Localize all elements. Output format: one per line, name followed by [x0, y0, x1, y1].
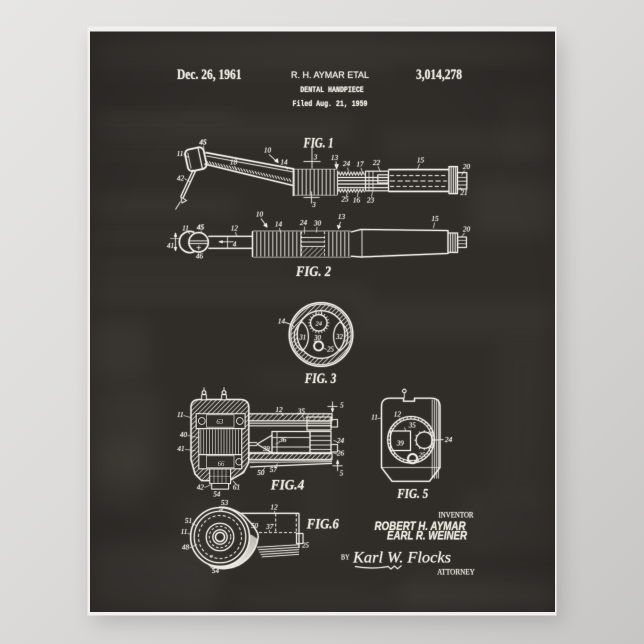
svg-text:FIG. 5: FIG. 5 — [396, 486, 428, 501]
svg-text:ATTORNEY: ATTORNEY — [437, 568, 475, 577]
svg-text:10: 10 — [264, 147, 272, 155]
svg-text:50: 50 — [251, 522, 259, 530]
svg-text:25: 25 — [419, 452, 425, 459]
svg-text:41: 41 — [167, 242, 174, 250]
svg-text:BY: BY — [341, 554, 350, 562]
svg-text:13: 13 — [338, 213, 346, 221]
svg-text:20: 20 — [463, 163, 471, 171]
svg-text:Filed Aug. 21, 1959: Filed Aug. 21, 1959 — [293, 100, 368, 109]
svg-text:26: 26 — [337, 450, 345, 458]
svg-text:EARL R. WEINER: EARL R. WEINER — [387, 531, 468, 543]
svg-text:25: 25 — [327, 347, 334, 354]
svg-text:FIG.4: FIG.4 — [270, 478, 305, 494]
svg-text:3,014,278: 3,014,278 — [416, 67, 462, 83]
svg-text:66: 66 — [218, 461, 225, 468]
svg-text:42: 42 — [177, 175, 185, 183]
svg-text:16: 16 — [353, 197, 361, 205]
svg-text:24: 24 — [316, 320, 323, 327]
svg-text:3: 3 — [313, 154, 318, 162]
svg-text:DENTAL HANDPIECE: DENTAL HANDPIECE — [300, 86, 364, 95]
svg-text:35: 35 — [297, 408, 306, 416]
svg-text:25: 25 — [341, 196, 349, 204]
svg-text:42: 42 — [197, 484, 205, 492]
svg-text:39: 39 — [262, 446, 270, 453]
svg-text:24: 24 — [337, 437, 345, 445]
svg-text:5: 5 — [340, 402, 344, 410]
svg-text:11: 11 — [371, 414, 378, 422]
svg-text:31: 31 — [298, 334, 306, 341]
svg-text:a: a — [219, 508, 222, 514]
svg-text:63: 63 — [216, 419, 223, 426]
svg-text:FIG.6: FIG.6 — [306, 517, 340, 533]
svg-text:17: 17 — [356, 161, 364, 169]
svg-text:12: 12 — [394, 411, 402, 419]
svg-text:11: 11 — [177, 411, 184, 419]
svg-text:Dec. 26, 1961: Dec. 26, 1961 — [177, 67, 242, 83]
svg-text:50: 50 — [257, 469, 265, 477]
svg-text:11: 11 — [177, 150, 184, 158]
svg-text:24: 24 — [343, 160, 351, 168]
svg-text:23: 23 — [367, 197, 375, 205]
svg-text:R. H. AYMAR ETAL: R. H. AYMAR ETAL — [291, 70, 369, 80]
svg-text:54: 54 — [212, 567, 220, 575]
svg-text:24: 24 — [445, 435, 453, 444]
svg-text:40: 40 — [180, 431, 188, 439]
svg-text:FIG. 1: FIG. 1 — [303, 136, 334, 152]
svg-text:45: 45 — [198, 139, 207, 147]
svg-text:25: 25 — [302, 543, 309, 550]
svg-text:41: 41 — [177, 445, 184, 453]
svg-text:24: 24 — [300, 219, 308, 227]
svg-text:53: 53 — [221, 499, 229, 507]
svg-text:11: 11 — [181, 528, 188, 536]
svg-text:39: 39 — [396, 440, 405, 448]
svg-text:15: 15 — [431, 215, 439, 223]
svg-text:20: 20 — [463, 226, 471, 234]
svg-text:10: 10 — [256, 211, 264, 219]
svg-text:35: 35 — [408, 422, 417, 430]
svg-text:22: 22 — [373, 159, 381, 167]
svg-text:11: 11 — [182, 225, 189, 233]
svg-text:30: 30 — [313, 220, 322, 228]
svg-text:45: 45 — [196, 224, 205, 232]
svg-text:FIG. 3: FIG. 3 — [304, 371, 336, 387]
svg-text:13: 13 — [331, 154, 339, 162]
svg-text:Karl W. Flocks: Karl W. Flocks — [352, 550, 451, 567]
svg-text:14: 14 — [280, 159, 288, 167]
svg-text:15: 15 — [417, 157, 425, 165]
svg-text:12: 12 — [270, 504, 278, 512]
svg-text:54: 54 — [213, 491, 221, 499]
svg-text:48: 48 — [182, 544, 190, 552]
svg-text:INVENTOR: INVENTOR — [439, 511, 475, 520]
svg-text:46: 46 — [196, 253, 204, 261]
svg-text:57: 57 — [270, 466, 278, 474]
svg-text:3: 3 — [311, 201, 316, 209]
svg-text:a: a — [210, 554, 213, 560]
svg-text:14: 14 — [278, 318, 286, 326]
svg-text:37: 37 — [265, 523, 274, 531]
svg-text:18: 18 — [230, 159, 238, 167]
svg-text:12: 12 — [275, 406, 283, 414]
svg-text:30: 30 — [313, 335, 321, 342]
svg-text:14: 14 — [275, 221, 283, 229]
svg-text:12: 12 — [231, 225, 239, 233]
svg-text:4: 4 — [233, 241, 237, 249]
svg-text:5: 5 — [340, 470, 344, 478]
svg-text:FIG. 2: FIG. 2 — [295, 264, 331, 280]
svg-text:51: 51 — [185, 517, 192, 525]
svg-text:32: 32 — [335, 334, 343, 341]
